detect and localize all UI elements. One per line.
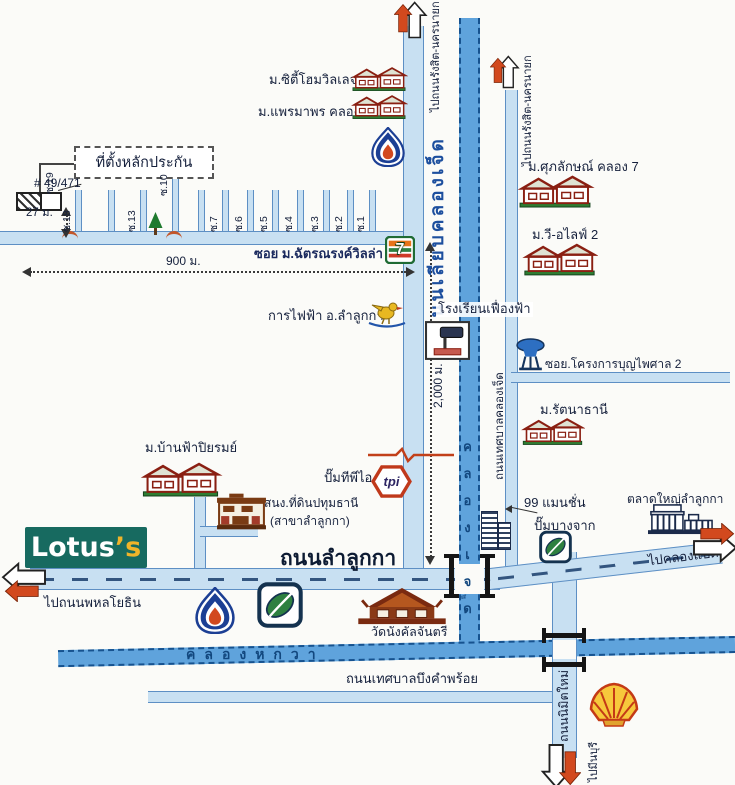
tpi-station-label: ปั๊มทีพีไอ (324, 471, 372, 486)
soi-label: ซ.7 (208, 216, 220, 232)
to-rangsit-label: ไปถนนรังสิต-นครนายก (430, 1, 443, 112)
collateral-location-box: ที่ตั้งหลักประกัน (74, 146, 214, 179)
road-tessaban-klong-jed-label: ถนนเทศบาลคลองเจ็ด (494, 372, 507, 480)
arrow-up-icon (490, 55, 521, 89)
arrowhead (425, 556, 435, 565)
soi-label: ซ.2 (333, 216, 345, 232)
water-tower-icon (515, 338, 546, 371)
tree-icon (147, 212, 164, 236)
side-street (108, 190, 115, 232)
side-street (323, 190, 330, 232)
land-office-label-2: (สาขาลำลูกกา) (270, 515, 350, 529)
distance-line-900m (30, 271, 406, 273)
road-nimit-mai-label: ถนนนิมิตใหม่ (557, 670, 571, 742)
road-tessaban-bueng (148, 691, 552, 703)
land-office-label-1: สนง.ที่ดินปทุมธานี (264, 497, 358, 511)
to-minburi-label: ไปมีนบุรี (588, 742, 601, 782)
side-street (198, 190, 205, 232)
side-street (140, 190, 147, 232)
to-rangsit-label: ไปถนนรังสิต-นครนายก (522, 55, 535, 166)
canal-klong-hok-wa-label: คลองหกวา (186, 646, 325, 662)
soi-boonpaisal-label: ซอย.โครงการบุญไพศาล 2 (545, 358, 681, 372)
temple-icon (354, 588, 450, 626)
tpi-icon: tpi (371, 465, 412, 498)
mansion-99-label: 99 แมนชั่น (524, 496, 586, 511)
bridge-marker (485, 556, 490, 596)
bridge-gap (553, 640, 576, 659)
rattanathani-label: ม.รัตนาธานี (540, 403, 608, 418)
soi-chatnarong-label: ซอย ม.ฉัตรณรงค์วิลล่า 5 (254, 247, 394, 262)
lotus-logo: Lotus’s (25, 527, 147, 568)
house-icon (520, 417, 585, 446)
to-phahonyothin-label: ไปถนนพหลโยธิน (44, 596, 141, 611)
soi-label: ซ.18 (61, 210, 73, 232)
side-street (297, 190, 304, 232)
city-home-label: ม.ซิตี้โฮมวิลเลจ (269, 73, 357, 88)
side-street (272, 190, 279, 232)
side-street (222, 190, 229, 232)
pea-bird-icon (366, 299, 408, 329)
canal-klong-jed-label: คลองเจ็ด (459, 436, 474, 581)
school-label: โรงเรียนเฟื่องฟ้า (436, 302, 533, 317)
we-alive-label: ม.วี-อไลฟ์ 2 (532, 228, 598, 243)
collateral-label: ที่ตั้งหลักประกัน (96, 151, 193, 174)
connector-line (40, 163, 76, 165)
supalak-label: ม.ศุภลักษณ์ คลอง 7 (528, 160, 639, 175)
house-icon (521, 243, 598, 276)
distance-2000m-label: 2,000 ม. (432, 363, 446, 408)
mansion-tower (498, 522, 511, 550)
soi-label: ซ.10 (158, 174, 170, 196)
soi19-label: ซ.19 (44, 172, 56, 194)
arrow-down-icon (539, 743, 581, 785)
side-street (347, 190, 354, 232)
bangchak-icon (539, 530, 572, 564)
soi-label: ซ.5 (258, 216, 270, 232)
mansion-tower (481, 511, 498, 550)
house-icon (137, 462, 224, 497)
soi-label: ซ.1 (355, 216, 367, 232)
arrowhead (22, 267, 31, 277)
house-icon (515, 175, 595, 208)
arrow-up-icon (394, 0, 429, 40)
school-icon (425, 321, 470, 360)
soi-label: ซ.13 (126, 210, 138, 232)
distance-900m-label: 900 ม. (166, 255, 201, 269)
shell-icon (586, 682, 642, 728)
road-tessaban-klong-jed (505, 90, 518, 572)
arrow-right-icon (692, 523, 735, 565)
road-tessaban-bueng-label: ถนนเทศบาลบึงคำพร้อย (346, 672, 478, 687)
temple-label: วัดนังคัลจันตรี (371, 625, 448, 639)
ptt-icon (193, 587, 237, 634)
arrowhead (406, 267, 415, 277)
house-icon (350, 66, 408, 92)
seven-eleven-glyph: 7 (396, 241, 405, 259)
baanfah-label: ม.บ้านฟ้าปิยรมย์ (145, 441, 237, 456)
side-street (369, 190, 376, 232)
soi-label: ซ.4 (283, 216, 295, 232)
side-street (247, 190, 254, 232)
side-street (75, 190, 82, 232)
mansion-icon (481, 511, 512, 550)
lotus-logo-apostrophe-s: ’s (115, 532, 141, 563)
bridge-marker (544, 662, 584, 667)
tpi-glyph: tpi (384, 474, 400, 489)
land-office-icon (215, 493, 268, 531)
lotus-logo-text: Lotus (31, 532, 115, 563)
power-line-icon (366, 447, 458, 463)
soi-label: ซ.6 (233, 216, 245, 232)
soi-label: ซ.3 (309, 216, 321, 232)
canal-klong-hok-wa (58, 636, 735, 667)
map-canvas: ที่ตั้งหลักประกัน # 49/471 ซ.19 27 ม. ซ.… (0, 0, 735, 785)
bridge-marker (544, 633, 584, 638)
bangchak-icon (257, 582, 303, 628)
house-number-label: # 49/471 (34, 177, 81, 191)
side-street (172, 170, 179, 232)
seven-eleven-icon: 7 (385, 236, 415, 264)
distance-27m-label: 27 ม. (26, 207, 53, 220)
road-lamlukka-label: ถนนลำลูกกา (280, 547, 396, 571)
road-soi-boonpaisal (511, 372, 730, 383)
house-icon (350, 94, 408, 120)
ptt-icon (370, 127, 406, 167)
